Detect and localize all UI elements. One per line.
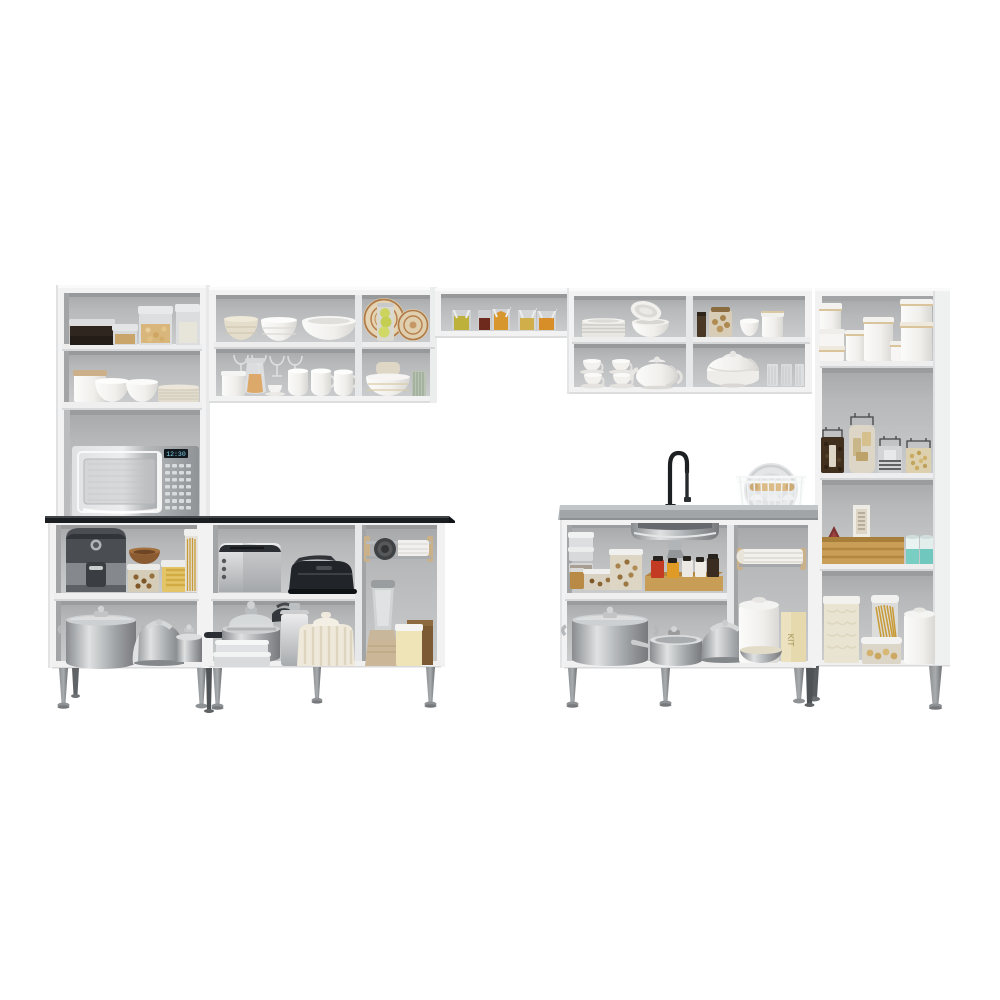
svg-text:12:30: 12:30 xyxy=(166,451,186,458)
svg-text:KIT: KIT xyxy=(786,634,795,647)
